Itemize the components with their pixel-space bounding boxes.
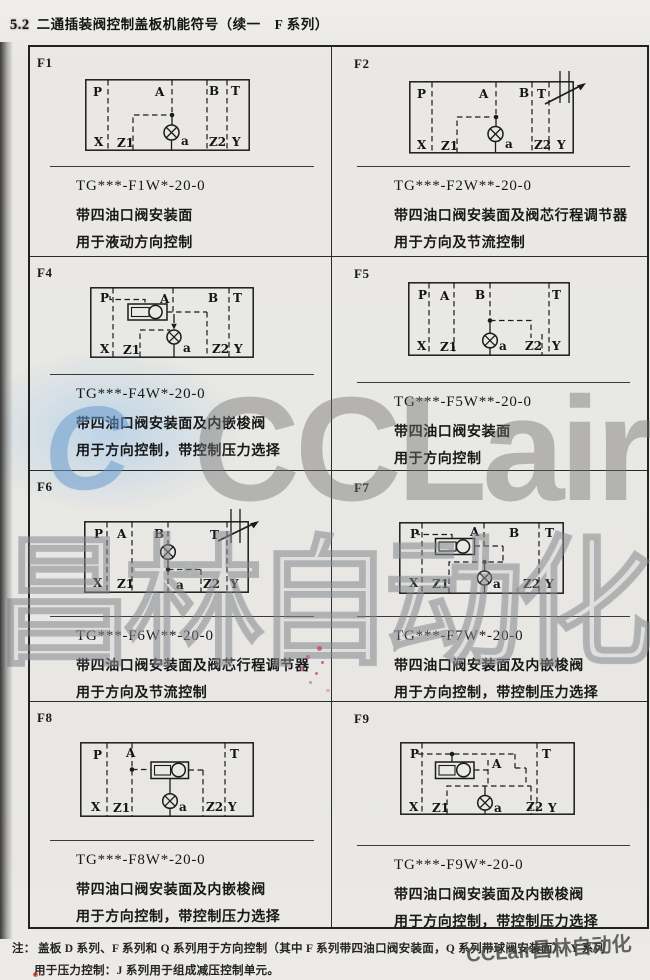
cell-id: F5 bbox=[354, 266, 369, 282]
port-label: Z1 bbox=[440, 340, 457, 354]
port-label: A bbox=[439, 289, 450, 303]
port-label: B bbox=[519, 86, 529, 100]
port-label: P bbox=[94, 527, 103, 541]
port-label: B bbox=[209, 84, 219, 98]
model-code: TG***-F6W**-20-0 bbox=[76, 628, 325, 645]
divider-line bbox=[357, 166, 630, 167]
port-label: P bbox=[410, 527, 419, 541]
port-label: T bbox=[210, 528, 219, 542]
description-line: 带四油口阀安装面及内嵌梭阀 bbox=[76, 878, 325, 905]
port-label: Z2 bbox=[534, 138, 551, 152]
port-label: A bbox=[154, 85, 165, 99]
cell-f4: F4 P A B T X Z1 a Z2 bbox=[30, 257, 332, 471]
port-label: Z2 bbox=[525, 339, 542, 353]
description-line: 用于方向控制，带控制压力选择 bbox=[394, 910, 641, 937]
cell-f6: F6 P A B T X Z1 a Z2 Y bbox=[30, 471, 332, 702]
cell-id: F2 bbox=[354, 56, 369, 72]
port-label: a bbox=[505, 137, 513, 151]
model-code: TG***-F1W*-20-0 bbox=[76, 178, 325, 195]
port-label: B bbox=[154, 527, 164, 541]
cell-id: F7 bbox=[354, 480, 369, 496]
model-code: TG***-F4W*-20-0 bbox=[76, 386, 325, 403]
book-spine-shadow bbox=[0, 42, 13, 939]
port-label: A bbox=[491, 757, 502, 771]
port-label: Z1 bbox=[117, 136, 134, 150]
port-label: P bbox=[93, 748, 102, 762]
f2-hydraulic-diagram: P A B T X Z1 a Z2 Y bbox=[409, 63, 589, 158]
description-line: 带四油口阀安装面及阀芯行程调节器 bbox=[76, 654, 325, 681]
divider-line bbox=[50, 840, 314, 841]
port-label: Z1 bbox=[441, 139, 458, 153]
description-line: 用于液动方向控制 bbox=[76, 231, 325, 258]
symbol-table: F1 P A B T X Z1 a Z2 Y TG***- bbox=[28, 45, 649, 929]
port-label: B bbox=[208, 291, 218, 305]
port-label: P bbox=[410, 747, 419, 761]
port-label: a bbox=[176, 578, 184, 592]
description-line: 带四油口阀安装面及内嵌梭阀 bbox=[394, 883, 641, 910]
port-label: X bbox=[417, 138, 427, 152]
page-title: 5.2二通插装阀控制盖板机能符号（续一 F 系列） bbox=[10, 13, 329, 34]
port-label: P bbox=[417, 87, 426, 101]
port-label: T bbox=[542, 747, 551, 761]
description-line: 用于方向控制 bbox=[394, 447, 641, 474]
port-label: a bbox=[493, 577, 501, 591]
f1-hydraulic-diagram: P A B T X Z1 a Z2 Y bbox=[85, 79, 250, 151]
port-label: Y bbox=[556, 138, 566, 152]
port-label: A bbox=[159, 292, 170, 306]
port-label: X bbox=[93, 576, 103, 590]
port-label: Y bbox=[551, 339, 561, 353]
port-label: Y bbox=[227, 800, 237, 814]
port-label: Y bbox=[233, 342, 243, 356]
section-number: 5.2 bbox=[10, 17, 30, 33]
port-label: A bbox=[125, 746, 136, 760]
port-label: Z2 bbox=[203, 577, 220, 591]
port-label: X bbox=[409, 576, 419, 590]
port-label: X bbox=[409, 800, 419, 814]
port-label: P bbox=[418, 288, 427, 302]
port-label: Z2 bbox=[206, 800, 223, 814]
port-label: A bbox=[469, 525, 480, 539]
footnote-line-1: 盖板 D 系列、F 系列和 Q 系列用于方向控制（其中 F 系列带四油口阀安装面… bbox=[38, 940, 606, 956]
scanned-catalog-page: 5.2二通插装阀控制盖板机能符号（续一 F 系列） F1 P A B T X Z… bbox=[0, 0, 650, 980]
f5-hydraulic-diagram: P A B T X Z1 a Z2 Y bbox=[408, 282, 570, 356]
port-label: Y bbox=[544, 577, 554, 591]
port-label: Y bbox=[229, 577, 239, 591]
port-label: a bbox=[499, 339, 507, 353]
cell-id: F4 bbox=[37, 265, 52, 281]
cell-f1: F1 P A B T X Z1 a Z2 Y TG***- bbox=[30, 47, 332, 257]
cell-id: F8 bbox=[37, 710, 52, 726]
cell-f5: F5 P A B T X Z1 a Z2 Y bbox=[332, 257, 647, 471]
port-label: X bbox=[94, 135, 104, 149]
cell-id: F1 bbox=[37, 55, 52, 71]
port-label: X bbox=[100, 342, 110, 356]
port-label: T bbox=[545, 526, 554, 540]
port-label: A bbox=[116, 527, 127, 541]
port-label: T bbox=[552, 288, 561, 302]
port-label: Z1 bbox=[432, 577, 449, 591]
model-code: TG***-F2W**-20-0 bbox=[394, 178, 641, 195]
model-code: TG***-F5W**-20-0 bbox=[394, 394, 641, 411]
port-label: Z1 bbox=[117, 577, 134, 591]
description-line: 用于方向控制，带控制压力选择 bbox=[76, 905, 325, 932]
cell-f7: F7 P A B T X Z1 a Z2 bbox=[332, 471, 647, 702]
divider-line bbox=[50, 616, 314, 617]
description-line: 带四油口阀安装面 bbox=[76, 204, 325, 231]
port-label: Y bbox=[231, 135, 241, 149]
model-code: TG***-F7W*-20-0 bbox=[394, 628, 641, 645]
port-label: Z1 bbox=[432, 801, 449, 815]
cell-id: F9 bbox=[354, 711, 369, 727]
port-label: Z2 bbox=[209, 135, 226, 149]
cell-f2: F2 P A B T X Z1 a Z2 Y bbox=[332, 47, 647, 257]
port-label: a bbox=[494, 801, 502, 815]
divider-line bbox=[50, 374, 314, 375]
description-line: 带四油口阀安装面 bbox=[394, 420, 641, 447]
description-line: 带四油口阀安装面及阀芯行程调节器 bbox=[394, 204, 641, 231]
f6-hydraulic-diagram: P A B T X Z1 a Z2 Y bbox=[84, 499, 264, 595]
cell-f8: F8 P A T X Z1 a Z2 Y bbox=[30, 702, 332, 927]
divider-line bbox=[357, 616, 630, 617]
f8-hydraulic-diagram: P A T X Z1 a Z2 Y bbox=[80, 742, 254, 817]
f9-hydraulic-diagram: P A T X Z1 a Z2 Y bbox=[400, 742, 575, 815]
port-label: A bbox=[478, 87, 489, 101]
port-label: a bbox=[181, 134, 189, 148]
port-label: T bbox=[537, 87, 546, 101]
model-code: TG***-F8W*-20-0 bbox=[76, 852, 325, 869]
section-title: 二通插装阀控制盖板机能符号（续一 F 系列） bbox=[37, 17, 329, 32]
divider-line bbox=[357, 382, 630, 383]
port-label: X bbox=[91, 800, 101, 814]
model-code: TG***-F9W*-20-0 bbox=[394, 857, 641, 874]
description-line: 带四油口阀安装面及内嵌梭阀 bbox=[394, 654, 641, 681]
port-label: T bbox=[230, 747, 239, 761]
cell-id: F6 bbox=[37, 479, 52, 495]
port-label: B bbox=[509, 526, 519, 540]
cell-f9: F9 P A T X Z1 a Z2 bbox=[332, 702, 647, 927]
port-label: Y bbox=[547, 801, 557, 815]
description-line: 带四油口阀安装面及内嵌梭阀 bbox=[76, 412, 325, 439]
port-label: a bbox=[179, 800, 187, 814]
divider-line bbox=[357, 845, 630, 846]
port-label: Z2 bbox=[523, 577, 540, 591]
port-label: Z2 bbox=[526, 800, 543, 814]
f4-hydraulic-diagram: P A B T X Z1 a Z2 Y bbox=[90, 287, 254, 358]
port-label: Z1 bbox=[123, 343, 140, 357]
divider-line bbox=[50, 166, 314, 167]
port-label: P bbox=[100, 291, 109, 305]
port-label: B bbox=[475, 288, 485, 302]
description-line: 用于方向及节流控制 bbox=[394, 231, 641, 258]
port-label: P bbox=[93, 85, 102, 99]
footnote-line-2: 用于压力控制：J 系列用于组成减压控制单元。 bbox=[34, 962, 279, 978]
port-label: Z2 bbox=[212, 342, 229, 356]
port-label: a bbox=[183, 341, 191, 355]
footnote-label: 注： bbox=[12, 940, 36, 956]
port-label: Z1 bbox=[113, 801, 130, 815]
port-label: T bbox=[233, 291, 242, 305]
port-label: T bbox=[231, 84, 240, 98]
port-label: X bbox=[417, 339, 427, 353]
f7-hydraulic-diagram: P A B T X Z1 a Z2 Y bbox=[399, 522, 564, 594]
description-line: 用于方向控制，带控制压力选择 bbox=[76, 439, 325, 466]
